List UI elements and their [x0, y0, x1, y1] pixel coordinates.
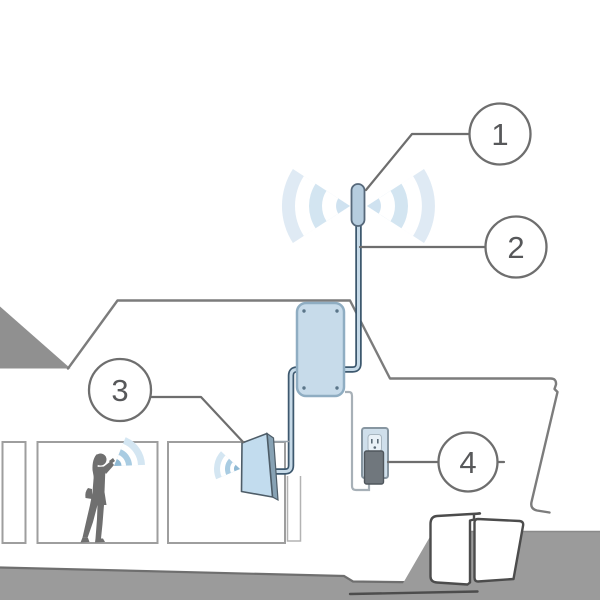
booster-installation-diagram: 1 2 3 4 — [0, 0, 600, 600]
outdoor-antenna — [352, 184, 365, 226]
person-torso — [93, 467, 106, 493]
outlet-socket — [368, 435, 382, 452]
booster-screw — [335, 386, 338, 389]
person-hips — [90, 492, 107, 505]
leader-3 — [151, 397, 243, 442]
callout-2-number: 2 — [507, 230, 524, 265]
callout-4: 4 — [439, 433, 498, 492]
booster-screw — [335, 309, 338, 312]
wifi-waves-outdoor-right — [367, 169, 435, 243]
callout-2: 2 — [486, 217, 547, 278]
booster-screw — [302, 309, 305, 312]
leader-lines — [151, 134, 504, 462]
room-left-partial — [3, 442, 26, 543]
booster-screw — [302, 386, 305, 389]
callout-1: 1 — [470, 104, 531, 165]
signal-booster — [297, 303, 344, 396]
callout-3-number: 3 — [111, 373, 128, 408]
callout-1-number: 1 — [491, 117, 508, 152]
diagram-canvas: 1 2 3 4 — [0, 0, 600, 600]
power-outlet — [362, 428, 388, 484]
wifi-waves-outdoor-left — [282, 169, 350, 243]
neighbor-roof-triangle — [0, 307, 71, 369]
porch-post — [475, 519, 524, 582]
wall-chase — [288, 476, 301, 541]
callouts: 1 2 3 4 — [89, 104, 547, 492]
callout-4-number: 4 — [459, 445, 476, 480]
callout-3: 3 — [89, 359, 151, 421]
socket-ground — [374, 446, 377, 449]
panel-face — [242, 434, 273, 498]
power-plug — [365, 451, 384, 484]
